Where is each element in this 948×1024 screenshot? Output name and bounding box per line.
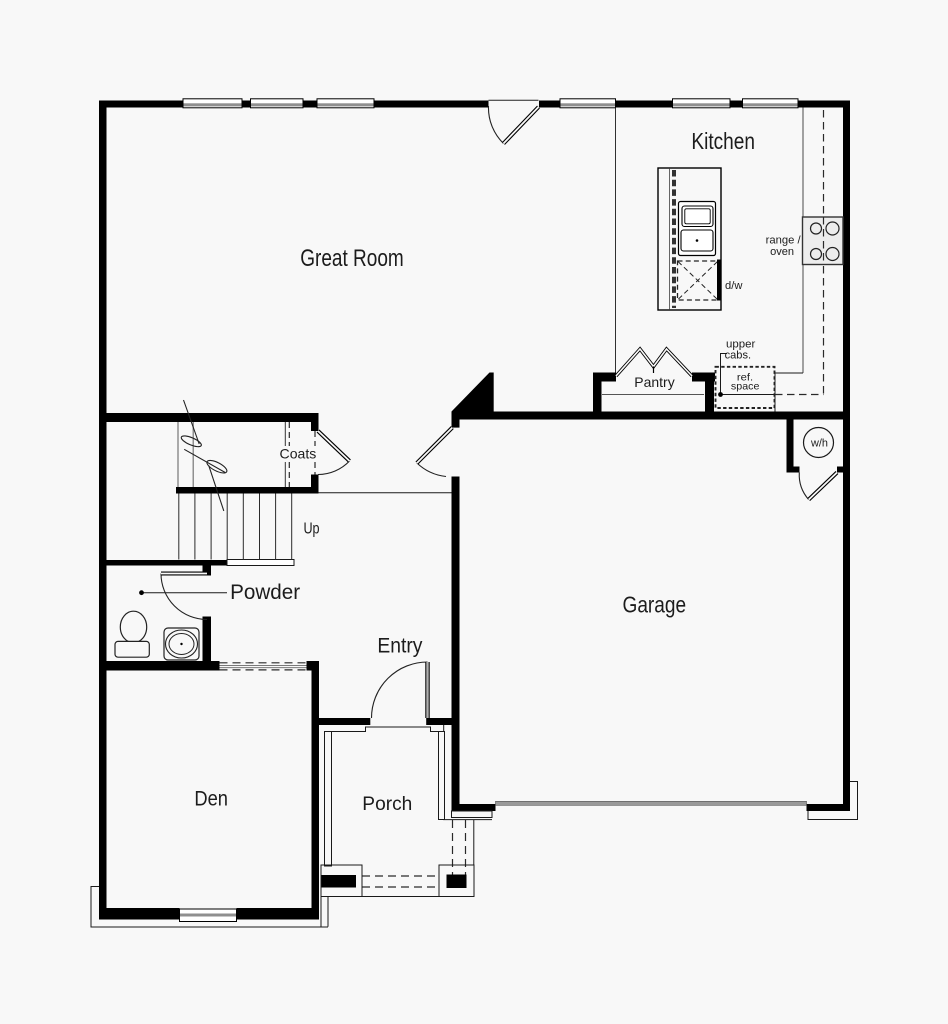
svg-text:Entry: Entry — [377, 635, 423, 658]
svg-text:Powder: Powder — [230, 581, 300, 604]
svg-text:d/w: d/w — [725, 280, 742, 292]
svg-text:Garage: Garage — [622, 592, 686, 618]
svg-text:Porch: Porch — [362, 793, 412, 815]
svg-text:Up: Up — [303, 520, 319, 537]
svg-text:Great Room: Great Room — [300, 245, 404, 272]
svg-text:cabs.: cabs. — [725, 349, 752, 361]
svg-text:w/h: w/h — [810, 438, 828, 450]
svg-text:Coats: Coats — [280, 446, 317, 461]
svg-text:Pantry: Pantry — [634, 374, 674, 390]
svg-text:Den: Den — [194, 787, 228, 810]
svg-text:oven: oven — [770, 246, 794, 258]
svg-text:Kitchen: Kitchen — [691, 128, 755, 154]
svg-text:range /: range / — [766, 235, 802, 247]
svg-text:space: space — [731, 381, 760, 393]
